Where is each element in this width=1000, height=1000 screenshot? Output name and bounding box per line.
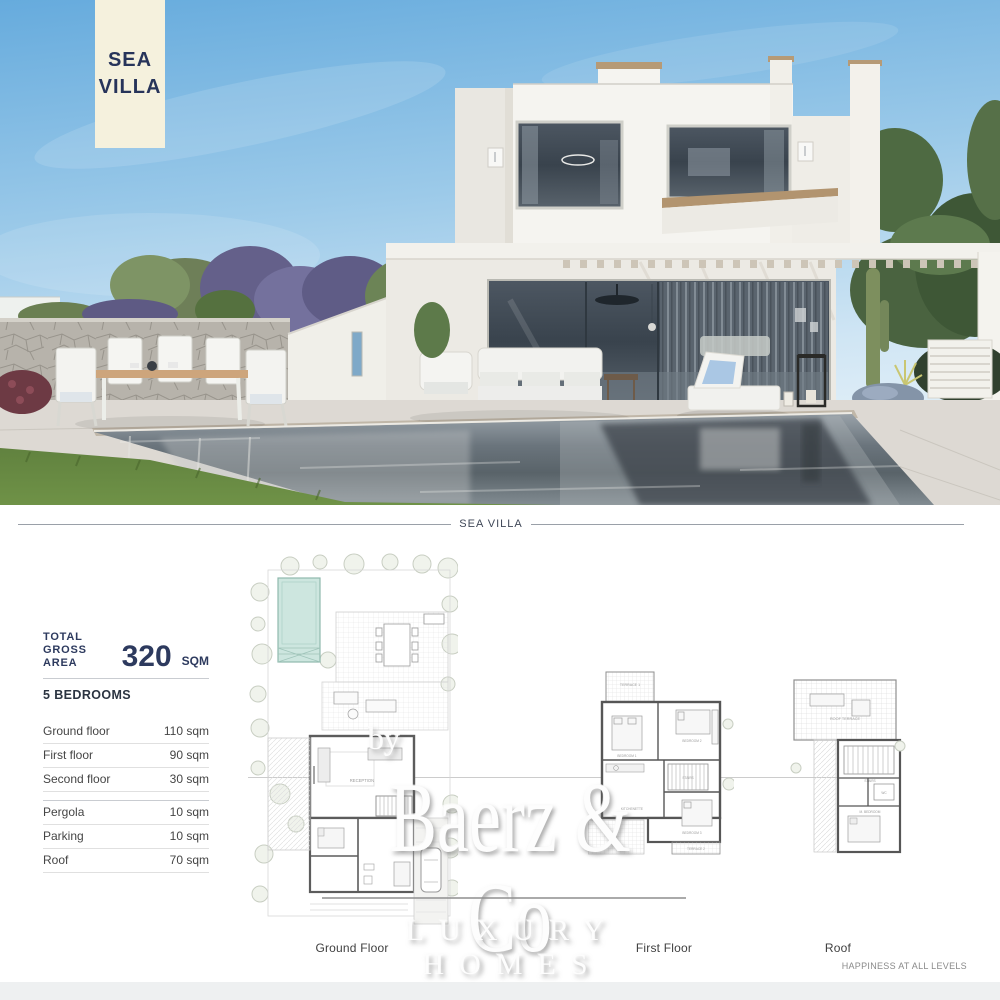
brochure-page: SEA VILLA SEA VILLA TOTAL GROSS AREA 320… xyxy=(0,0,1000,1000)
table-row: Pergola 10 sqm xyxy=(43,801,209,825)
roof-label: Roof xyxy=(768,941,908,955)
wood-cap xyxy=(596,62,662,69)
potted-plant xyxy=(414,302,450,358)
sea-villa-badge: SEA VILLA xyxy=(95,0,165,148)
row-label: Ground floor xyxy=(43,724,110,738)
svg-text:BEDROOM 1: BEDROOM 1 xyxy=(617,754,636,758)
divider-line-right xyxy=(531,524,964,525)
row-value: 10 sqm xyxy=(170,829,209,843)
svg-text:STAIRS: STAIRS xyxy=(682,776,693,780)
total-value: 320 xyxy=(122,644,172,670)
row-value: 110 sqm xyxy=(164,724,209,738)
plan-pool xyxy=(278,578,320,662)
total-label: TOTAL GROSS AREA xyxy=(43,631,112,670)
upper-window-left xyxy=(517,122,622,208)
row-label: Roof xyxy=(43,853,68,867)
svg-text:BEDROOM 2: BEDROOM 2 xyxy=(682,739,701,743)
svg-text:WC: WC xyxy=(881,791,887,795)
hero-photo: SEA VILLA xyxy=(0,0,1000,505)
row-value: 90 sqm xyxy=(170,748,209,762)
table-row: First floor 90 sqm xyxy=(43,744,209,768)
badge-line1: SEA xyxy=(108,47,152,74)
row-value: 70 sqm xyxy=(170,853,209,867)
row-label: Second floor xyxy=(43,772,110,786)
coffee-table xyxy=(604,374,638,380)
bedrooms-label: 5 BEDROOMS xyxy=(43,688,209,702)
row-label: Pergola xyxy=(43,805,84,819)
specs-panel: TOTAL GROSS AREA 320 SQM 5 BEDROOMS Grou… xyxy=(43,631,209,873)
svg-text:M. BEDROOM: M. BEDROOM xyxy=(860,810,881,814)
dining-table xyxy=(96,370,248,378)
cactus xyxy=(866,268,880,390)
plan-side-pergola xyxy=(268,738,310,850)
row-label: Parking xyxy=(43,829,84,843)
row-value: 30 sqm xyxy=(170,772,209,786)
badge-line2: VILLA xyxy=(99,74,162,101)
total-unit: SQM xyxy=(182,654,209,670)
upper-window-right xyxy=(668,126,790,198)
first-floor-label: First Floor xyxy=(594,941,734,955)
table-row: Roof 70 sqm xyxy=(43,849,209,873)
area-table: Ground floor 110 sqm First floor 90 sqm … xyxy=(43,720,209,873)
svg-text:STAIRS: STAIRS xyxy=(864,779,875,783)
bottom-band xyxy=(0,982,1000,1000)
divider-line-left xyxy=(18,524,451,525)
watermark-by: by xyxy=(368,720,400,757)
watermark-underline xyxy=(322,897,686,899)
svg-text:BEDROOM 3: BEDROOM 3 xyxy=(682,831,701,835)
table-row: Parking 10 sqm xyxy=(43,825,209,849)
total-gross-area: TOTAL GROSS AREA 320 SQM xyxy=(43,631,209,670)
svg-text:TERRACE 2: TERRACE 2 xyxy=(687,847,705,851)
ground-floor-label: Ground Floor xyxy=(282,941,422,955)
table-row: Second floor 30 sqm xyxy=(43,768,209,792)
footer-tagline: HAPPINESS AT ALL LEVELS xyxy=(842,961,967,971)
table-row: Ground floor 110 sqm xyxy=(43,720,209,744)
svg-text:ROOF TERRACE: ROOF TERRACE xyxy=(830,717,861,721)
roof-plan: ROOF TERRACE STAIRS WC M. BEDROOM xyxy=(786,668,906,858)
plan-terrace1 xyxy=(606,672,654,702)
row-label: First floor xyxy=(43,748,93,762)
pergola-beam xyxy=(386,243,1000,259)
plan-roof-terrace xyxy=(794,680,896,740)
specs-divider xyxy=(43,678,209,679)
row-value: 10 sqm xyxy=(170,805,209,819)
section-divider: SEA VILLA xyxy=(0,514,1000,534)
svg-text:TERRACE 1: TERRACE 1 xyxy=(620,683,640,687)
divider-label: SEA VILLA xyxy=(451,518,530,530)
